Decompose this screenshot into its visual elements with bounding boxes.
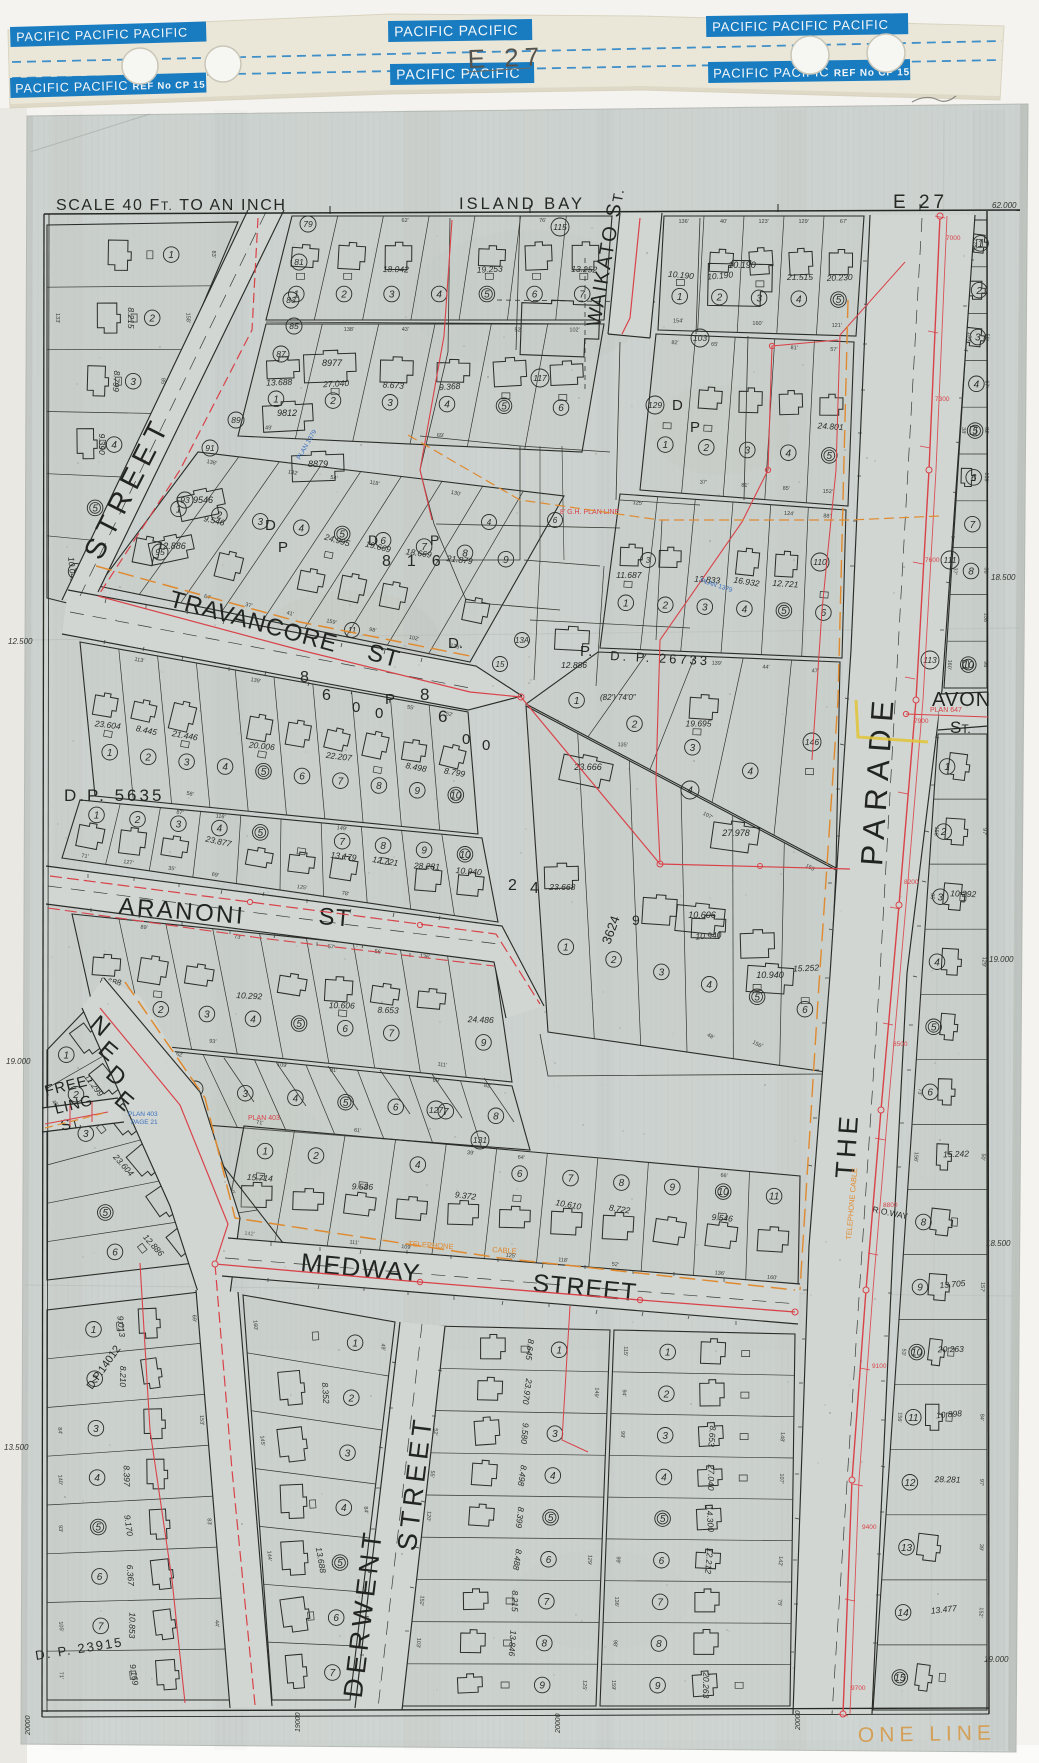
svg-text:9.546: 9.546: [711, 1212, 733, 1224]
svg-text:5: 5: [337, 1558, 343, 1569]
svg-text:6: 6: [393, 1102, 399, 1113]
svg-text:8.397: 8.397: [122, 1465, 132, 1487]
svg-text:7: 7: [339, 837, 345, 848]
svg-text:10: 10: [911, 1348, 923, 1359]
svg-text:4: 4: [687, 786, 693, 797]
svg-text:153′: 153′: [198, 1415, 205, 1426]
svg-text:4: 4: [706, 980, 712, 991]
svg-text:12.886: 12.886: [561, 660, 587, 670]
svg-text:115: 115: [553, 222, 567, 232]
svg-text:67′: 67′: [840, 219, 847, 225]
svg-text:103: 103: [693, 333, 707, 343]
svg-text:79: 79: [303, 219, 313, 229]
svg-text:84′: 84′: [362, 1506, 368, 1514]
svg-text:19.000: 19.000: [984, 1655, 1009, 1664]
svg-text:84′: 84′: [978, 1413, 984, 1421]
svg-text:2: 2: [631, 719, 638, 730]
svg-text:3: 3: [975, 333, 981, 344]
svg-text:7: 7: [970, 520, 976, 531]
svg-text:2: 2: [610, 955, 617, 966]
svg-text:P: P: [690, 419, 700, 436]
svg-text:3: 3: [552, 1429, 558, 1440]
svg-text:84′: 84′: [56, 1427, 62, 1435]
svg-text:81′: 81′: [790, 345, 797, 351]
svg-text:8.215: 8.215: [126, 307, 136, 329]
svg-text:816: 816: [382, 553, 457, 570]
svg-text:93′: 93′: [209, 1039, 217, 1046]
svg-text:105′: 105′: [57, 1621, 64, 1632]
svg-text:159′: 159′: [610, 1680, 616, 1690]
svg-text:18.042: 18.042: [383, 264, 409, 274]
svg-text:7: 7: [330, 1668, 336, 1679]
svg-text:69′: 69′: [190, 1315, 196, 1323]
svg-text:8.673: 8.673: [382, 379, 404, 390]
svg-text:152′: 152′: [823, 489, 833, 495]
svg-text:9.390: 9.390: [97, 433, 107, 455]
svg-text:13: 13: [901, 1543, 913, 1554]
svg-text:PLAN 403: PLAN 403: [128, 1111, 158, 1118]
svg-text:4: 4: [748, 767, 754, 778]
svg-text:P.: P.: [580, 643, 592, 660]
svg-text:156′: 156′: [896, 1412, 903, 1423]
svg-text:10.853: 10.853: [127, 1612, 137, 1638]
svg-text:10: 10: [718, 1187, 730, 1198]
svg-text:13A: 13A: [515, 636, 529, 645]
svg-text:9: 9: [481, 1038, 487, 1049]
svg-text:E 27: E 27: [893, 192, 948, 213]
svg-text:65′: 65′: [711, 342, 718, 348]
svg-text:19.000: 19.000: [989, 955, 1014, 964]
svg-text:1: 1: [94, 811, 100, 822]
svg-text:9.368: 9.368: [439, 381, 461, 392]
svg-text:12: 12: [904, 1478, 916, 1489]
svg-text:4: 4: [250, 1014, 256, 1025]
svg-text:145′: 145′: [259, 1435, 266, 1446]
svg-text:2: 2: [348, 1393, 355, 1404]
svg-text:3: 3: [659, 968, 665, 979]
svg-text:2: 2: [340, 290, 347, 301]
svg-text:111′: 111′: [349, 1240, 359, 1247]
svg-text:12.886: 12.886: [158, 541, 186, 551]
svg-text:82′: 82′: [983, 427, 989, 435]
svg-text:8500: 8500: [893, 1041, 908, 1048]
svg-text:PACIFIC PACIFIC: PACIFIC PACIFIC: [394, 22, 518, 40]
svg-text:93′: 93′: [57, 1525, 63, 1533]
svg-text:4: 4: [974, 379, 980, 390]
svg-text:88′: 88′: [823, 513, 831, 519]
svg-text:3: 3: [243, 1089, 249, 1100]
svg-text:1: 1: [563, 943, 569, 954]
svg-text:5: 5: [972, 426, 978, 437]
svg-text:9812: 9812: [277, 408, 297, 418]
svg-text:64′: 64′: [517, 1155, 525, 1162]
svg-text:7: 7: [389, 1029, 395, 1040]
svg-text:83′: 83′: [210, 251, 216, 258]
svg-text:152′: 152′: [977, 1607, 984, 1618]
svg-text:3: 3: [258, 517, 264, 528]
svg-text:8: 8: [619, 1178, 625, 1189]
svg-text:10.940: 10.940: [695, 930, 722, 942]
svg-text:20000: 20000: [795, 1710, 802, 1731]
svg-text:6: 6: [802, 1005, 808, 1016]
svg-text:4: 4: [111, 440, 117, 451]
svg-text:81′: 81′: [330, 1067, 338, 1074]
svg-text:9546: 9546: [193, 495, 213, 505]
svg-text:44′: 44′: [213, 1620, 219, 1628]
svg-text:15.252: 15.252: [793, 962, 820, 973]
svg-text:6: 6: [532, 290, 538, 301]
svg-text:107′: 107′: [778, 1473, 784, 1483]
svg-text:24.486: 24.486: [467, 1014, 495, 1025]
svg-text:160′: 160′: [252, 1320, 259, 1331]
svg-text:P: P: [385, 691, 395, 708]
svg-text:6: 6: [333, 1613, 339, 1624]
svg-text:9.013: 9.013: [115, 1315, 127, 1337]
svg-text:7: 7: [98, 1622, 104, 1633]
svg-text:82′: 82′: [484, 1083, 492, 1090]
svg-text:6: 6: [927, 1088, 933, 1099]
svg-text:1: 1: [64, 1050, 70, 1061]
svg-text:149′: 149′: [593, 1387, 600, 1398]
svg-text:2: 2: [157, 1005, 164, 1016]
svg-text:136′: 136′: [613, 1596, 619, 1606]
svg-text:157′: 157′: [979, 1282, 986, 1293]
svg-text:6: 6: [971, 473, 977, 484]
svg-text:4: 4: [222, 762, 228, 773]
svg-text:99′: 99′: [614, 1556, 620, 1563]
svg-text:5: 5: [827, 451, 833, 462]
svg-text:160′: 160′: [752, 321, 762, 327]
svg-text:6: 6: [342, 1024, 348, 1035]
svg-text:6: 6: [558, 403, 564, 414]
svg-text:5: 5: [258, 828, 264, 839]
svg-text:8: 8: [968, 567, 974, 578]
svg-text:3: 3: [646, 556, 651, 565]
svg-text:136′: 136′: [678, 219, 688, 225]
svg-text:9: 9: [917, 1283, 923, 1294]
svg-text:6: 6: [97, 1572, 103, 1583]
svg-text:24.801: 24.801: [816, 420, 844, 432]
svg-text:D: D: [265, 517, 276, 534]
svg-text:19.253: 19.253: [476, 264, 503, 275]
svg-text:6: 6: [546, 1555, 552, 1566]
svg-text:8.352: 8.352: [320, 1382, 331, 1404]
svg-text:14: 14: [898, 1608, 910, 1619]
svg-text:9400: 9400: [862, 1524, 877, 1531]
svg-text:4: 4: [796, 294, 802, 305]
svg-text:20000: 20000: [25, 1715, 32, 1736]
svg-text:9: 9: [415, 786, 421, 797]
svg-text:6: 6: [438, 707, 447, 726]
svg-text:8.799: 8.799: [111, 370, 122, 392]
svg-text:2: 2: [148, 314, 155, 325]
svg-text:9: 9: [670, 1183, 676, 1194]
svg-text:159′: 159′: [983, 472, 990, 483]
svg-text:1: 1: [352, 1338, 358, 1349]
svg-text:8: 8: [380, 841, 386, 852]
svg-text:3: 3: [938, 892, 944, 903]
svg-text:4: 4: [530, 880, 539, 897]
svg-text:8: 8: [300, 669, 309, 686]
svg-text:3: 3: [756, 294, 762, 305]
svg-text:4: 4: [217, 824, 223, 835]
svg-text:1: 1: [262, 1147, 268, 1158]
svg-text:7: 7: [579, 290, 585, 301]
svg-text:8: 8: [493, 1111, 499, 1122]
svg-text:4: 4: [436, 290, 442, 301]
svg-text:D.P. 5635: D.P. 5635: [64, 786, 164, 805]
svg-text:1: 1: [677, 292, 683, 303]
svg-text:49′: 49′: [265, 425, 272, 431]
svg-text:5: 5: [343, 1098, 349, 1109]
svg-text:PLAN 403: PLAN 403: [248, 1115, 280, 1122]
svg-text:156′: 156′: [932, 826, 939, 837]
svg-text:61′: 61′: [354, 1128, 362, 1135]
svg-text:2: 2: [716, 293, 723, 304]
svg-text:28.281: 28.281: [933, 1474, 960, 1484]
svg-text:37′: 37′: [700, 480, 707, 486]
svg-text:8.653: 8.653: [706, 1425, 717, 1447]
svg-text:142′: 142′: [777, 1556, 783, 1566]
svg-text:D: D: [672, 397, 683, 414]
svg-text:160′: 160′: [946, 659, 953, 670]
svg-text:4: 4: [934, 957, 940, 968]
svg-text:3: 3: [662, 1431, 668, 1442]
svg-text:14.300: 14.300: [704, 1506, 716, 1533]
svg-text:11.687: 11.687: [616, 570, 642, 580]
svg-text:7300: 7300: [935, 396, 950, 403]
svg-text:55′: 55′: [407, 705, 415, 712]
svg-text:PAGE 21: PAGE 21: [131, 1119, 158, 1126]
svg-text:129′: 129′: [798, 219, 808, 225]
svg-text:3: 3: [83, 1129, 89, 1140]
svg-text:PLAN 647: PLAN 647: [930, 707, 962, 714]
svg-text:23.668: 23.668: [548, 882, 575, 892]
svg-text:10: 10: [963, 660, 975, 671]
svg-text:75′: 75′: [776, 1599, 782, 1606]
svg-text:83: 83: [286, 295, 296, 305]
svg-text:2: 2: [144, 753, 151, 764]
svg-text:3: 3: [389, 290, 395, 301]
svg-text:P: P: [278, 539, 288, 556]
svg-text:2: 2: [508, 877, 517, 894]
svg-text:8: 8: [542, 1639, 548, 1650]
svg-text:4: 4: [94, 1473, 100, 1484]
svg-text:9.586: 9.586: [352, 1181, 374, 1192]
svg-text:23.666: 23.666: [573, 762, 602, 772]
svg-text:6: 6: [299, 772, 305, 783]
svg-text:ST: ST: [318, 903, 353, 932]
svg-text:2: 2: [329, 396, 336, 407]
svg-text:5: 5: [836, 295, 842, 306]
svg-text:5: 5: [261, 767, 267, 778]
svg-text:99′: 99′: [619, 1431, 625, 1438]
svg-text:58′: 58′: [186, 791, 194, 798]
svg-text:5: 5: [501, 401, 507, 412]
svg-text:1: 1: [665, 1348, 671, 1359]
svg-text:18.500: 18.500: [991, 573, 1016, 582]
svg-text:135′: 135′: [617, 742, 627, 748]
svg-text:9.580: 9.580: [519, 1422, 531, 1444]
svg-text:CABLE: CABLE: [492, 1245, 517, 1256]
svg-text:13.500: 13.500: [4, 1443, 29, 1452]
svg-text:8200: 8200: [904, 879, 919, 886]
svg-text:10: 10: [459, 850, 471, 861]
svg-text:5: 5: [754, 992, 760, 1003]
svg-text:1: 1: [91, 1325, 97, 1336]
svg-text:125′: 125′: [581, 1680, 588, 1691]
svg-text:87: 87: [276, 349, 286, 359]
svg-text:12.500: 12.500: [8, 637, 33, 646]
svg-text:124′: 124′: [784, 511, 795, 518]
svg-text:SCALE 40 FT. TO AN INCH: SCALE 40 FT. TO AN INCH: [56, 197, 287, 214]
svg-text:7: 7: [443, 1107, 449, 1118]
svg-text:71′: 71′: [81, 853, 89, 860]
svg-text:71′: 71′: [58, 1672, 64, 1680]
svg-text:8977: 8977: [322, 358, 343, 368]
svg-text:ISLAND BAY: ISLAND BAY: [459, 195, 585, 213]
svg-text:15: 15: [496, 660, 505, 669]
svg-text:85′: 85′: [783, 486, 790, 492]
svg-text:78′: 78′: [341, 891, 349, 898]
svg-text:7: 7: [568, 1174, 574, 1185]
svg-text:3: 3: [93, 1424, 99, 1435]
svg-text:67′: 67′: [983, 380, 989, 388]
svg-text:62′: 62′: [402, 218, 409, 224]
svg-text:85: 85: [289, 321, 299, 331]
svg-text:8.215: 8.215: [510, 1590, 520, 1612]
svg-text:9: 9: [539, 1681, 545, 1692]
svg-text:148′: 148′: [779, 1432, 785, 1442]
svg-text:82′: 82′: [671, 340, 678, 346]
svg-text:21.515: 21.515: [786, 272, 813, 282]
svg-text:15.714: 15.714: [246, 1172, 273, 1184]
svg-text:35′: 35′: [168, 866, 176, 873]
svg-text:127: 127: [429, 1105, 443, 1115]
svg-text:7: 7: [657, 1598, 663, 1609]
svg-text:7600: 7600: [925, 557, 940, 564]
svg-text:57′: 57′: [327, 944, 335, 951]
svg-text:7000: 7000: [946, 235, 961, 242]
svg-text:5: 5: [660, 1514, 666, 1525]
svg-text:81′: 81′: [741, 483, 748, 489]
svg-text:133′: 133′: [54, 313, 60, 323]
svg-text:87′: 87′: [176, 810, 184, 817]
svg-text:11: 11: [908, 1413, 918, 1424]
svg-text:154′: 154′: [673, 319, 683, 325]
svg-text:10.292: 10.292: [236, 990, 263, 1001]
svg-text:91: 91: [205, 443, 215, 453]
svg-text:3: 3: [130, 377, 136, 388]
svg-text:9: 9: [632, 912, 640, 928]
svg-text:8.210: 8.210: [118, 1366, 128, 1388]
svg-text:5: 5: [103, 1208, 109, 1219]
svg-text:28.281: 28.281: [413, 860, 441, 871]
svg-text:27.040: 27.040: [322, 378, 350, 389]
svg-text:76′: 76′: [539, 218, 546, 224]
svg-text:6: 6: [112, 1248, 118, 1259]
svg-text:53′: 53′: [900, 1348, 906, 1356]
svg-text:19000: 19000: [295, 1712, 302, 1732]
svg-text:89: 89: [231, 415, 241, 425]
svg-text:66′: 66′: [720, 1173, 728, 1180]
svg-text:73′: 73′: [916, 1088, 922, 1096]
svg-text:8: 8: [420, 685, 429, 704]
svg-text:123′: 123′: [758, 219, 768, 225]
svg-text:5: 5: [96, 1523, 102, 1534]
svg-text:69′: 69′: [432, 1078, 440, 1085]
svg-text:10.190: 10.190: [728, 260, 756, 270]
svg-text:7: 7: [544, 1597, 550, 1608]
svg-text:9: 9: [421, 846, 427, 857]
svg-text:2: 2: [940, 827, 947, 838]
svg-text:97′: 97′: [981, 828, 987, 836]
svg-text:10.940: 10.940: [756, 970, 784, 980]
svg-text:129: 129: [648, 400, 662, 410]
svg-text:9700: 9700: [851, 1685, 866, 1692]
svg-text:1: 1: [574, 696, 580, 707]
svg-text:2: 2: [662, 600, 669, 611]
svg-text:1: 1: [556, 1345, 562, 1356]
svg-text:131: 131: [473, 1135, 487, 1145]
svg-text:97′: 97′: [978, 1479, 984, 1487]
svg-text:62.000: 62.000: [992, 201, 1017, 210]
svg-text:10.606: 10.606: [688, 910, 716, 920]
svg-text:0: 0: [375, 705, 383, 722]
svg-text:18.500: 18.500: [986, 1239, 1011, 1248]
svg-text:118′: 118′: [558, 1257, 568, 1264]
svg-text:9100: 9100: [872, 1363, 887, 1370]
svg-text:3: 3: [690, 743, 696, 754]
svg-text:5: 5: [931, 1022, 937, 1033]
svg-text:139′: 139′: [712, 661, 722, 667]
svg-text:94′: 94′: [620, 1389, 626, 1396]
svg-text:10: 10: [450, 791, 462, 802]
svg-text:4: 4: [293, 1093, 299, 1104]
svg-text:D.: D.: [448, 635, 463, 652]
svg-text:2: 2: [703, 443, 710, 454]
svg-text:83′: 83′: [205, 1518, 211, 1526]
svg-text:6.367: 6.367: [125, 1564, 136, 1586]
svg-text:15: 15: [894, 1673, 906, 1684]
svg-text:3: 3: [345, 1448, 351, 1459]
svg-text:136′: 136′: [714, 1270, 725, 1277]
svg-text:11: 11: [769, 1192, 779, 1203]
svg-text:ONE LINE: ONE LINE: [858, 1722, 996, 1747]
svg-text:27.978: 27.978: [721, 828, 750, 838]
svg-text:6: 6: [659, 1556, 665, 1567]
svg-text:129′: 129′: [980, 956, 987, 967]
svg-text:152′: 152′: [418, 1595, 425, 1606]
svg-text:81: 81: [294, 257, 304, 267]
svg-text:13.688: 13.688: [266, 377, 293, 388]
svg-text:1: 1: [623, 598, 629, 609]
svg-text:4: 4: [550, 1471, 556, 1482]
svg-text:20000: 20000: [555, 1713, 562, 1734]
svg-text:140′: 140′: [56, 1475, 63, 1486]
svg-text:1: 1: [107, 748, 113, 759]
svg-text:3: 3: [702, 602, 708, 613]
svg-text:50′: 50′: [979, 1153, 985, 1161]
svg-text:2: 2: [134, 815, 141, 826]
svg-text:4: 4: [661, 1473, 667, 1484]
svg-text:160′: 160′: [767, 1275, 778, 1282]
svg-text:110: 110: [813, 557, 827, 567]
svg-text:19.000: 19.000: [6, 1057, 31, 1066]
svg-text:39′: 39′: [978, 1544, 984, 1552]
svg-text:8: 8: [656, 1639, 662, 1650]
svg-text:85′: 85′: [929, 893, 935, 901]
